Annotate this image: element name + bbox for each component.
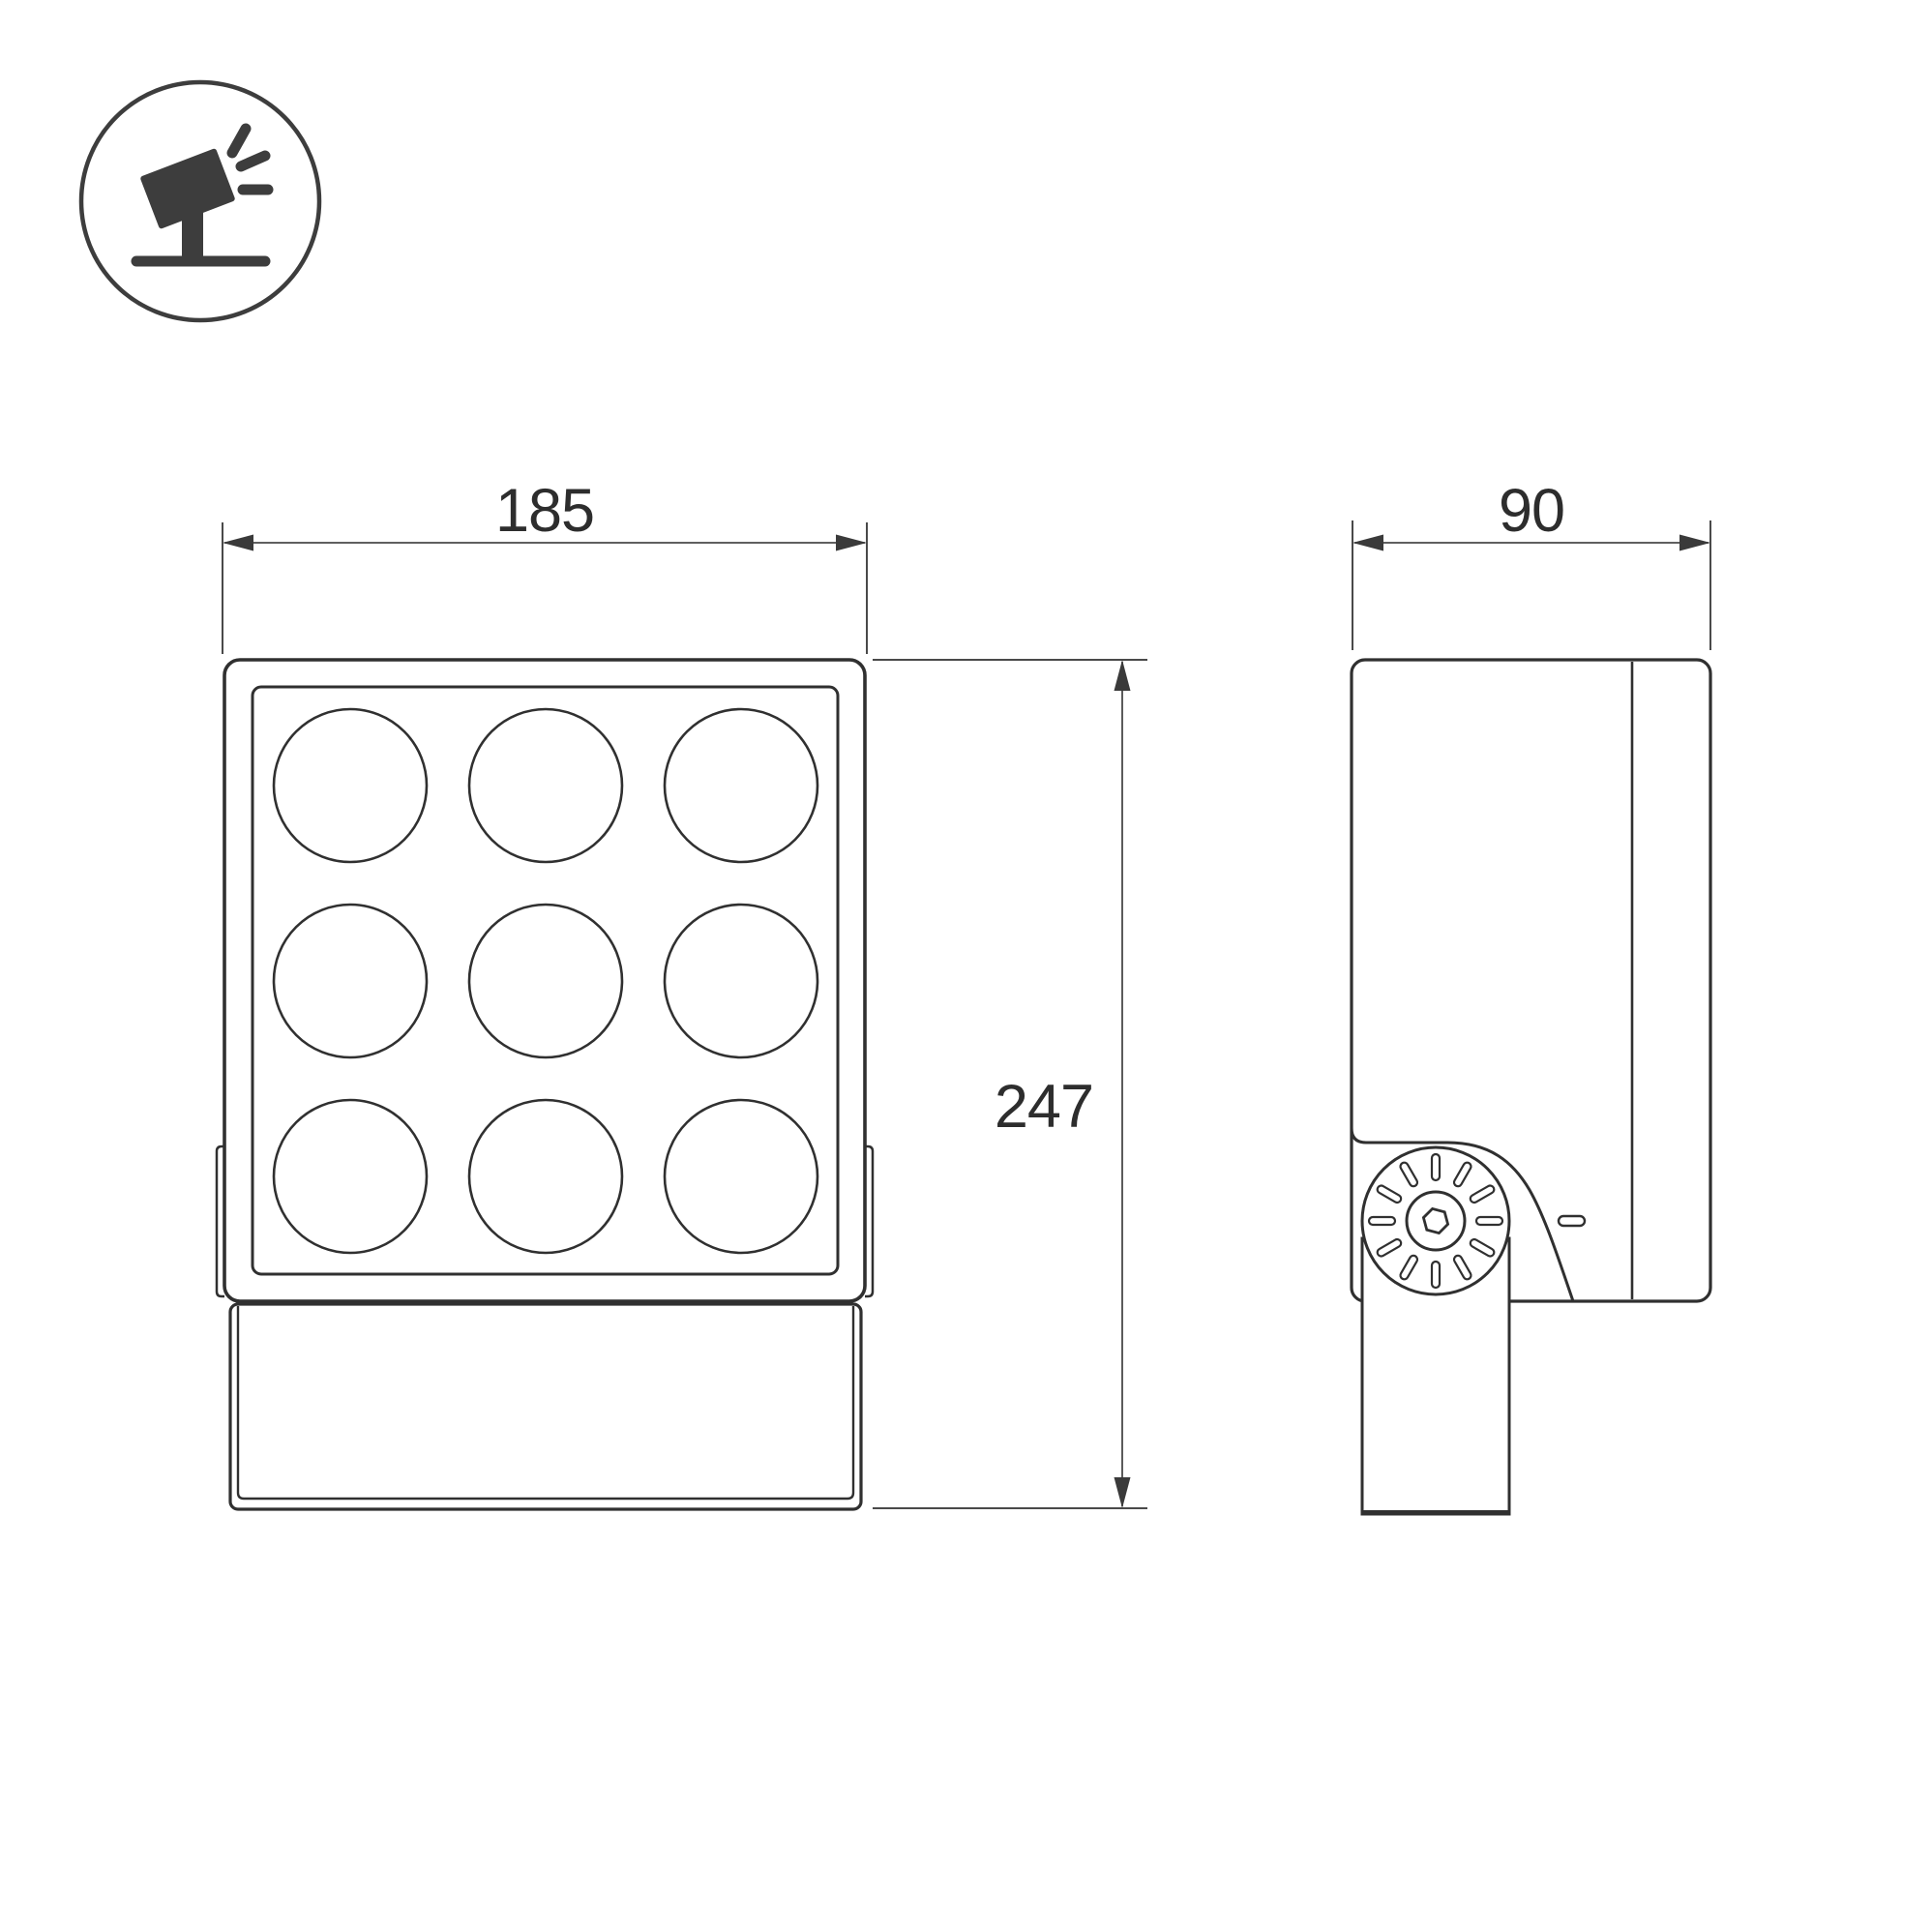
- icon-ray-middle: [241, 156, 265, 166]
- arrowhead-left: [1352, 535, 1383, 551]
- technical-drawing: 185 90 247: [0, 0, 1932, 1932]
- dimension-front-height: 247: [873, 660, 1147, 1508]
- icon-ray-top: [232, 129, 246, 153]
- dimension-value-front-width: 185: [495, 477, 594, 545]
- dimension-value-front-height: 247: [995, 1073, 1093, 1141]
- side-pivot-knob: [1362, 1147, 1509, 1294]
- knob-hex-socket-icon: [1423, 1208, 1447, 1233]
- dimension-value-side-depth: 90: [1499, 477, 1564, 545]
- dimension-side-depth: 90: [1352, 477, 1710, 650]
- arrowhead-right: [836, 535, 867, 551]
- drawing-canvas: 185 90 247: [0, 0, 1932, 1932]
- arrowhead-bottom: [1115, 1477, 1131, 1508]
- dimension-front-width: 185: [223, 477, 867, 654]
- floodlight-icon: [81, 82, 319, 320]
- front-lens-panel: [253, 687, 838, 1274]
- arrowhead-top: [1115, 660, 1131, 691]
- front-driver-box: [230, 1304, 861, 1509]
- icon-stand-post: [182, 211, 203, 261]
- side-view: [1352, 660, 1710, 1514]
- front-view: [217, 660, 873, 1509]
- side-slot-mark: [1559, 1216, 1585, 1226]
- arrowhead-left: [223, 535, 253, 551]
- arrowhead-right: [1679, 535, 1710, 551]
